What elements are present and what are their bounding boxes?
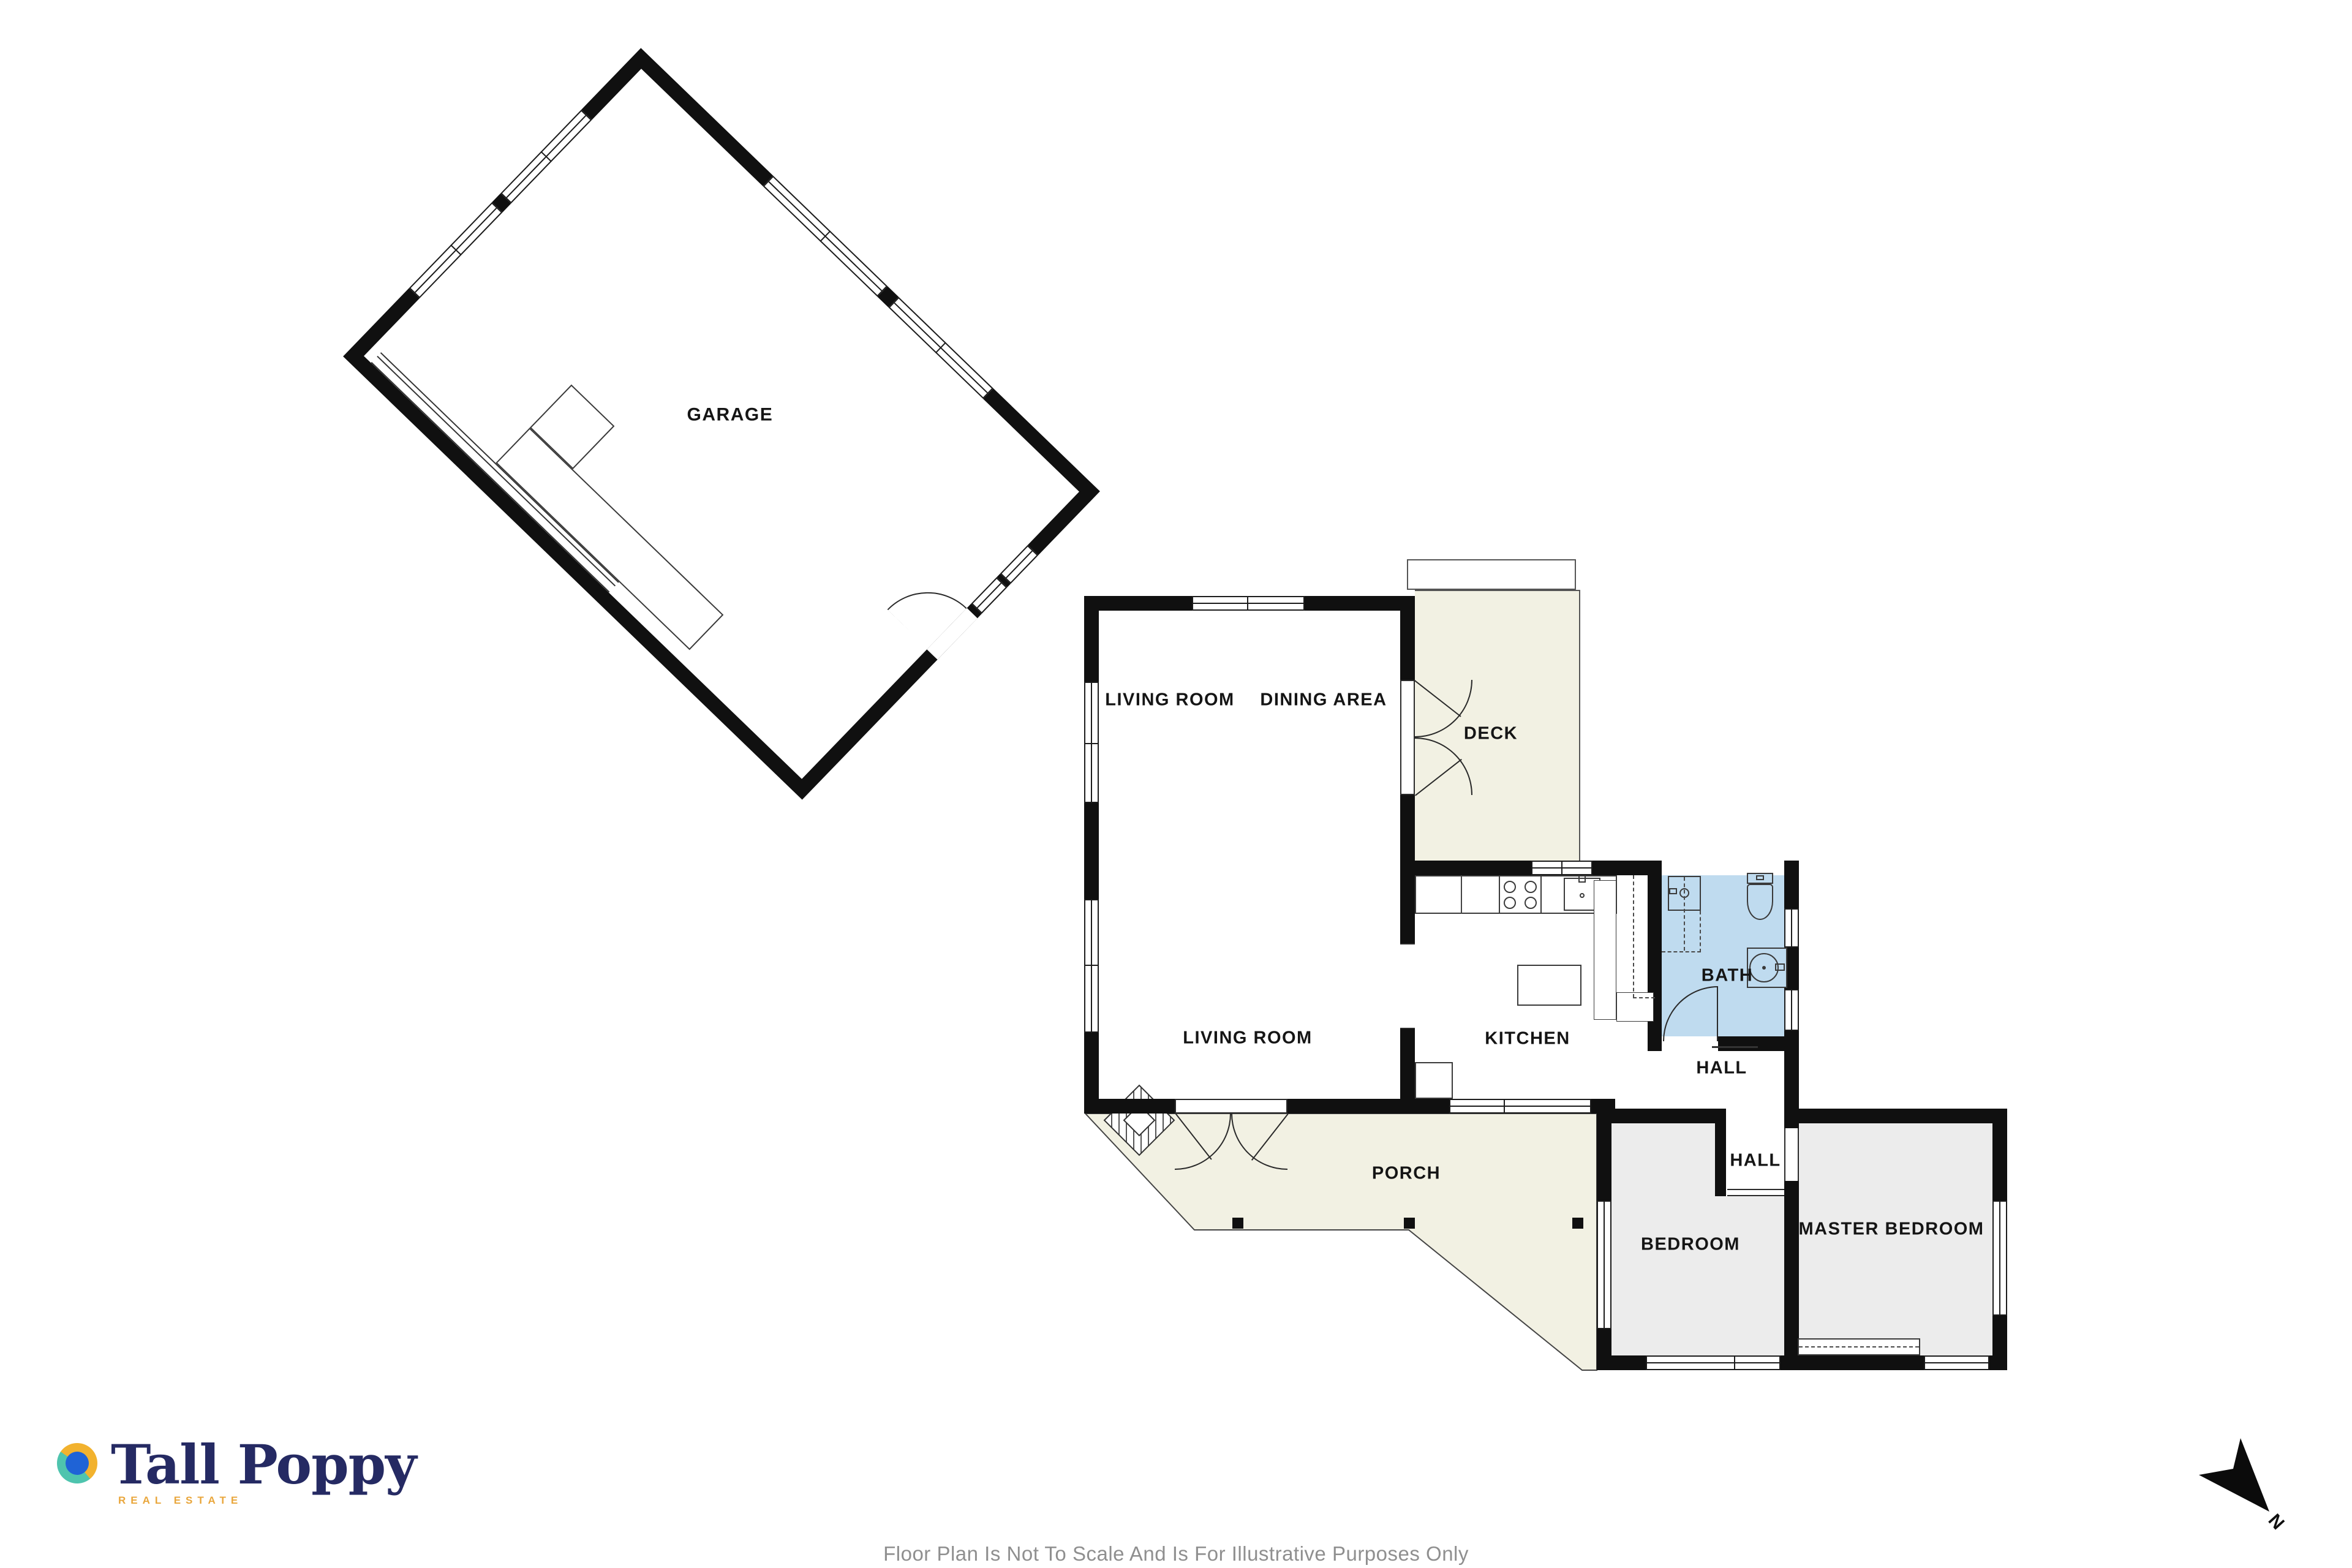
room-label-bath: BATH [1702, 966, 1753, 986]
room-label-living-room: LIVING ROOM [1105, 690, 1234, 710]
window-mullion [1734, 1355, 1735, 1370]
window [1084, 899, 1099, 1033]
window [1597, 1200, 1611, 1329]
disclaimer-text: Floor Plan Is Not To Scale And Is For Il… [883, 1542, 1469, 1566]
door-opening [1175, 1099, 1287, 1114]
kitchen-island [1517, 965, 1581, 1006]
porch-post [1232, 1218, 1243, 1229]
window [1192, 596, 1305, 611]
tall-poppy-logo-icon [57, 1443, 97, 1483]
north-arrow-icon [2199, 1438, 2269, 1512]
window [1646, 1355, 1781, 1370]
cased-opening [1400, 943, 1415, 1029]
wall [1287, 1099, 1449, 1114]
room-label-garage: GARAGE [687, 405, 773, 426]
wall [1084, 1099, 1175, 1114]
stove-burner [1525, 897, 1537, 909]
cupboard [1415, 1062, 1453, 1099]
wall [1084, 596, 1099, 1114]
door-opening [1400, 680, 1415, 795]
shower [1662, 911, 1701, 952]
wardrobe-rail-dashed-line [1799, 1346, 1919, 1347]
toilet-button [1756, 875, 1764, 880]
tall-cabinet [1594, 880, 1616, 1020]
room-label-deck: DECK [1464, 724, 1518, 744]
overhead-cabinet-dashed-line [1633, 997, 1655, 998]
washing-machine-tap [1669, 888, 1677, 894]
porch-post [1404, 1218, 1415, 1229]
window-mullion [1561, 861, 1562, 875]
room-label-master-bedroom: MASTER BEDROOM [1799, 1219, 1985, 1240]
wall [1600, 1109, 1726, 1123]
wall [1648, 1036, 1662, 1051]
wall [1597, 1355, 1646, 1370]
stove [1499, 875, 1542, 914]
porch-floor [1085, 1114, 1597, 1370]
stove-burner [1504, 881, 1516, 893]
master-bedroom-floor [1796, 1123, 1992, 1355]
bath-threshold [1712, 1046, 1758, 1048]
window-mullion [1504, 1099, 1505, 1114]
window [1992, 1200, 2007, 1316]
window [1784, 989, 1799, 1031]
wall [1400, 795, 1415, 943]
tall-poppy-logo: Tall Poppy REAL ESTATE [57, 1439, 416, 1507]
wall [1784, 1181, 1799, 1370]
cased-opening [1784, 1128, 1799, 1181]
stove-burner [1525, 881, 1537, 893]
room-label-bedroom: BEDROOM [1641, 1235, 1740, 1255]
room-label-dining-area: DINING AREA [1260, 690, 1387, 710]
window [1924, 1355, 1989, 1370]
wall [1400, 596, 1415, 680]
wall [1415, 861, 1531, 875]
room-label-living-room-2: LIVING ROOM [1183, 1028, 1312, 1049]
stove-burner [1504, 897, 1516, 909]
basin-drain [1762, 966, 1766, 970]
toilet-bowl [1747, 884, 1773, 920]
sink-drain [1580, 893, 1585, 898]
window [1784, 908, 1799, 948]
wall [1796, 1109, 2007, 1123]
deck-stairs [1407, 559, 1576, 590]
wall [1718, 1036, 1799, 1051]
window-mullion [1247, 596, 1248, 611]
wall [1992, 1316, 2007, 1370]
wall [1784, 861, 1799, 908]
wall [1715, 1109, 1726, 1196]
wall [1400, 1029, 1415, 1114]
room-label-kitchen: KITCHEN [1485, 1029, 1570, 1049]
sink-faucet [1578, 875, 1586, 883]
window-mullion [1084, 743, 1099, 744]
door-leaf [1717, 986, 1718, 1041]
counter-divider [1461, 875, 1462, 914]
logo-text-block: Tall Poppy REAL ESTATE [111, 1439, 416, 1507]
window [1449, 1099, 1591, 1114]
overhead-cabinet-dashed-line [1633, 875, 1634, 998]
wall [1648, 861, 1662, 1051]
window-mullion [1084, 965, 1099, 966]
floor-plan-canvas: GARAGE [0, 0, 2352, 1568]
wall [1597, 1109, 1611, 1200]
room-label-hall-upper: HALL [1696, 1058, 1747, 1079]
wall [1781, 1355, 1924, 1370]
cased-opening [1727, 1189, 1784, 1196]
logo-icon-center-dot [66, 1452, 89, 1475]
logo-brand-name: Tall Poppy [111, 1439, 416, 1491]
wall [1992, 1109, 2007, 1200]
room-label-hall-lower: HALL [1730, 1151, 1781, 1171]
window [1084, 682, 1099, 803]
basin-tap [1775, 963, 1785, 971]
room-label-porch: PORCH [1372, 1164, 1441, 1184]
porch-post [1572, 1218, 1583, 1229]
